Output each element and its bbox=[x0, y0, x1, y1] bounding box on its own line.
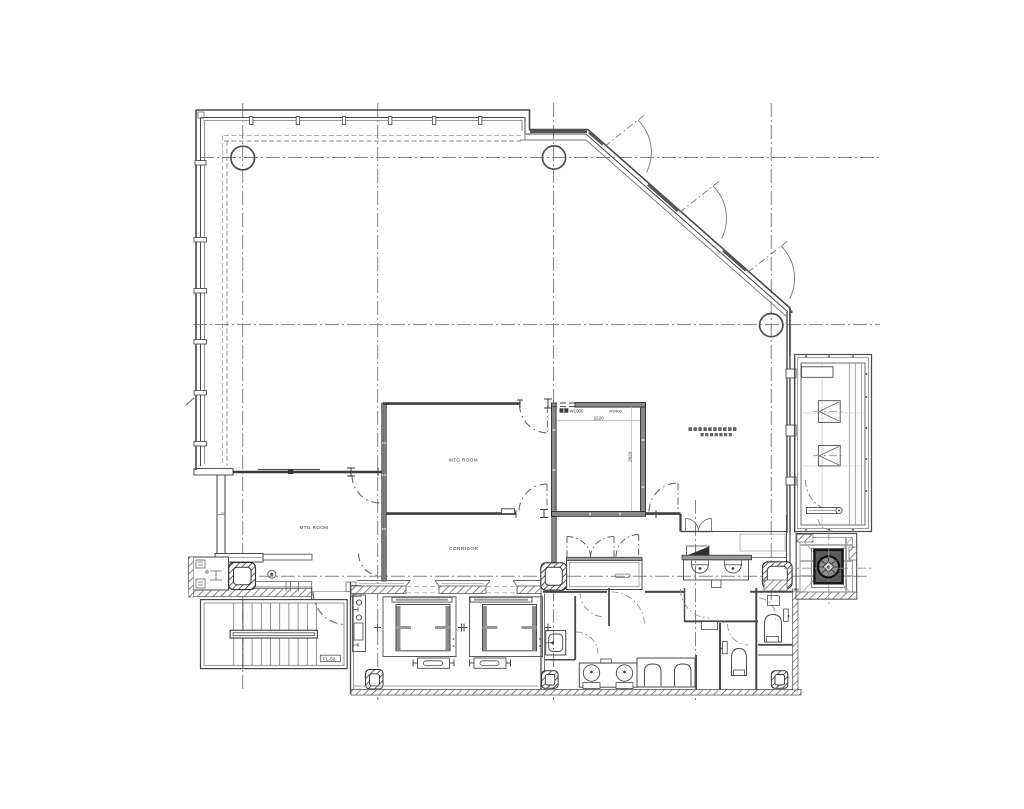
svg-text:2220: 2220 bbox=[594, 416, 605, 421]
svg-text:2620: 2620 bbox=[628, 451, 633, 462]
svg-text:W2400: W2400 bbox=[609, 409, 622, 414]
svg-text:W1900: W1900 bbox=[570, 409, 584, 414]
svg-text:FL-50: FL-50 bbox=[323, 657, 336, 663]
svg-text:CORRIDOR: CORRIDOR bbox=[449, 546, 478, 552]
svg-text:MTG ROOM: MTG ROOM bbox=[300, 525, 329, 530]
svg-text:MTG ROOM: MTG ROOM bbox=[449, 458, 478, 463]
